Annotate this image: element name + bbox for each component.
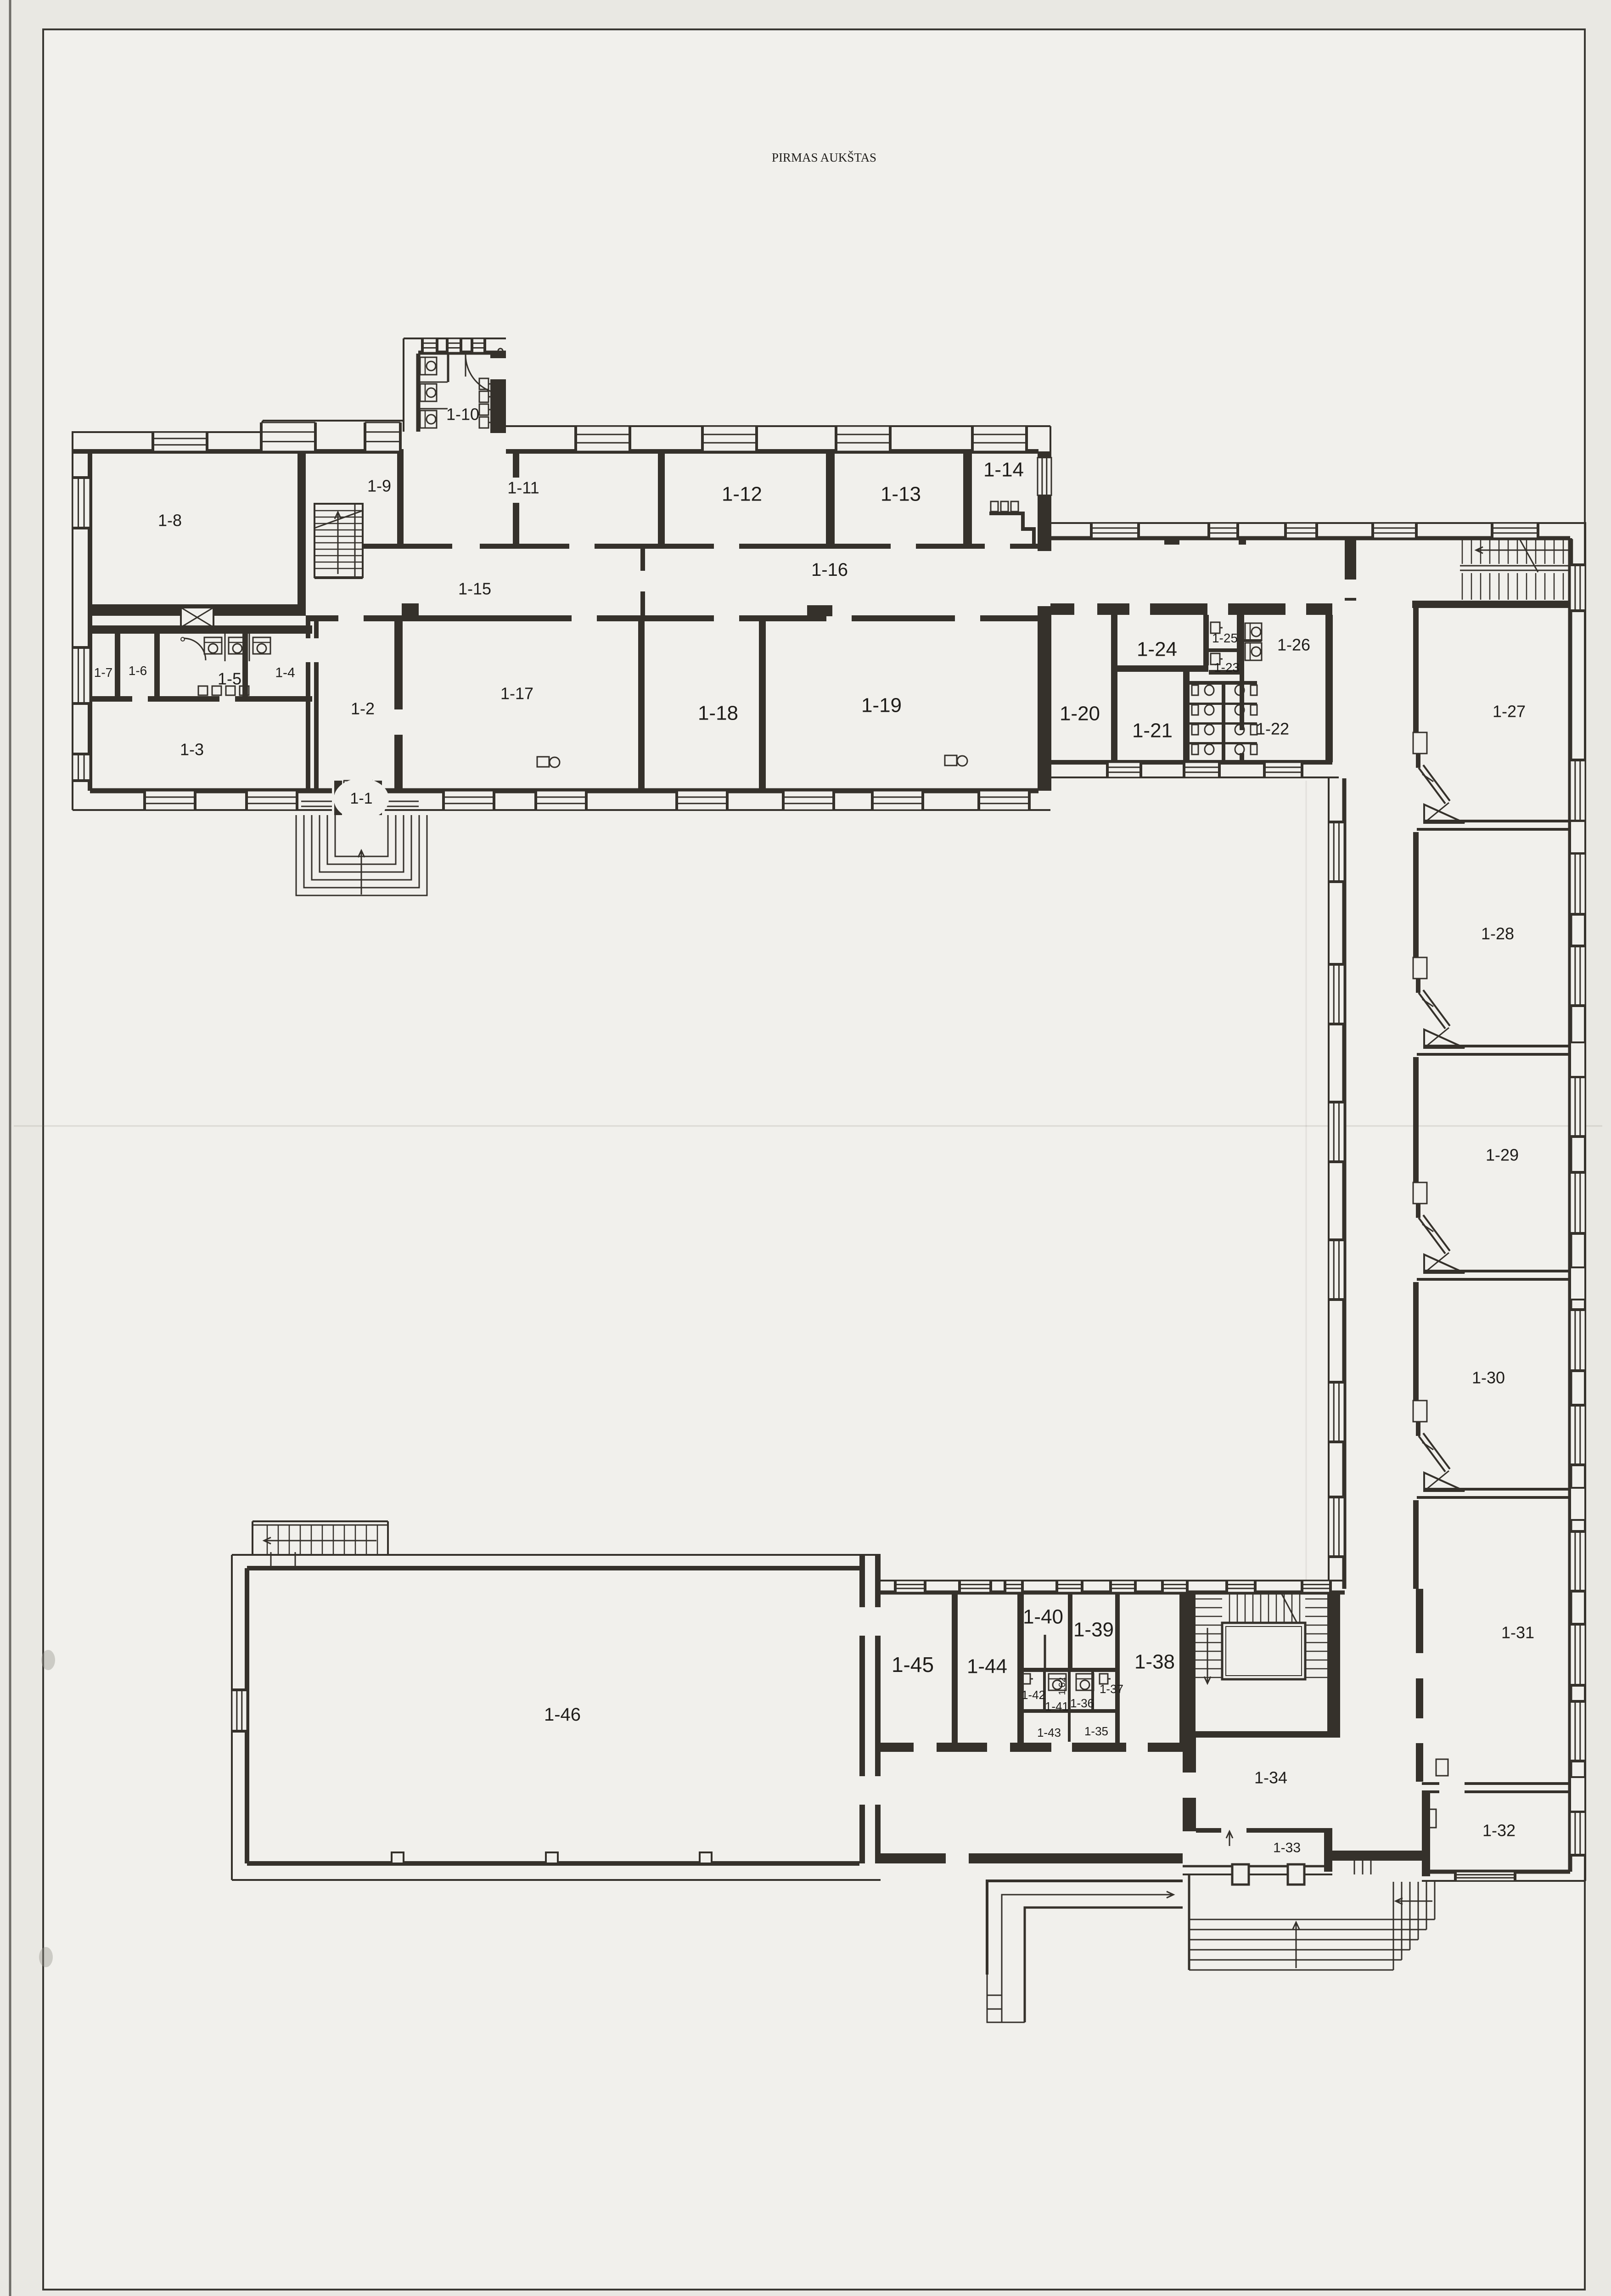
svg-text:1-44: 1-44: [967, 1655, 1007, 1677]
svg-text:1-12: 1-12: [722, 483, 762, 505]
svg-text:1-5: 1-5: [218, 670, 241, 688]
svg-text:1-45: 1-45: [892, 1653, 934, 1677]
svg-text:1-19: 1-19: [861, 694, 902, 716]
svg-text:1-7: 1-7: [94, 665, 112, 680]
svg-text:1-31: 1-31: [1501, 1623, 1534, 1642]
svg-text:1-21: 1-21: [1132, 719, 1173, 742]
svg-text:1-6: 1-6: [129, 664, 147, 678]
svg-text:1-4: 1-4: [275, 665, 295, 681]
svg-text:1-43: 1-43: [1037, 1726, 1061, 1739]
svg-text:1-9: 1-9: [367, 477, 391, 495]
svg-text:1-38: 1-38: [1134, 1650, 1175, 1673]
svg-text:1-15: 1-15: [458, 580, 491, 598]
svg-text:1-41: 1-41: [1045, 1699, 1069, 1713]
svg-text:1-18: 1-18: [698, 702, 738, 724]
svg-text:1-42: 1-42: [1022, 1688, 1045, 1702]
svg-text:1-13: 1-13: [881, 483, 921, 505]
svg-text:1-34: 1-34: [1254, 1768, 1287, 1787]
svg-text:1-39: 1-39: [1073, 1618, 1114, 1641]
svg-text:PIRMAS AUKŠTAS: PIRMAS AUKŠTAS: [772, 151, 876, 164]
svg-text:1-16: 1-16: [811, 560, 848, 580]
svg-text:1-33: 1-33: [1273, 1840, 1301, 1856]
svg-text:1-30: 1-30: [1472, 1368, 1505, 1387]
svg-text:1-2: 1-2: [351, 699, 375, 718]
svg-text:1-32: 1-32: [1482, 1821, 1516, 1840]
svg-text:1-14: 1-14: [983, 458, 1024, 481]
svg-text:1-1: 1-1: [350, 790, 372, 807]
svg-text:1-23: 1-23: [1214, 660, 1240, 675]
svg-text:1-17: 1-17: [500, 684, 533, 703]
svg-text:1-29: 1-29: [1486, 1146, 1519, 1165]
svg-text:1-10: 1-10: [446, 405, 479, 424]
svg-text:1-35: 1-35: [1084, 1724, 1108, 1738]
svg-text:1-36: 1-36: [1070, 1696, 1094, 1710]
svg-text:1-46: 1-46: [544, 1705, 581, 1725]
svg-text:1-37: 1-37: [1100, 1682, 1123, 1696]
svg-text:1-27: 1-27: [1493, 702, 1526, 721]
svg-text:1-26: 1-26: [1277, 636, 1310, 654]
svg-text:1-24: 1-24: [1137, 638, 1177, 660]
svg-text:1-8: 1-8: [158, 511, 182, 530]
svg-text:1-11: 1-11: [507, 478, 539, 497]
svg-text:1-3: 1-3: [180, 740, 204, 759]
svg-text:1-20: 1-20: [1060, 702, 1100, 725]
svg-text:1-40: 1-40: [1023, 1605, 1063, 1628]
svg-text:1-25: 1-25: [1212, 631, 1238, 645]
svg-text:1-22: 1-22: [1256, 720, 1289, 738]
svg-text:1-28: 1-28: [1481, 924, 1514, 943]
svg-text:1.62: 1.62: [1057, 1677, 1067, 1695]
